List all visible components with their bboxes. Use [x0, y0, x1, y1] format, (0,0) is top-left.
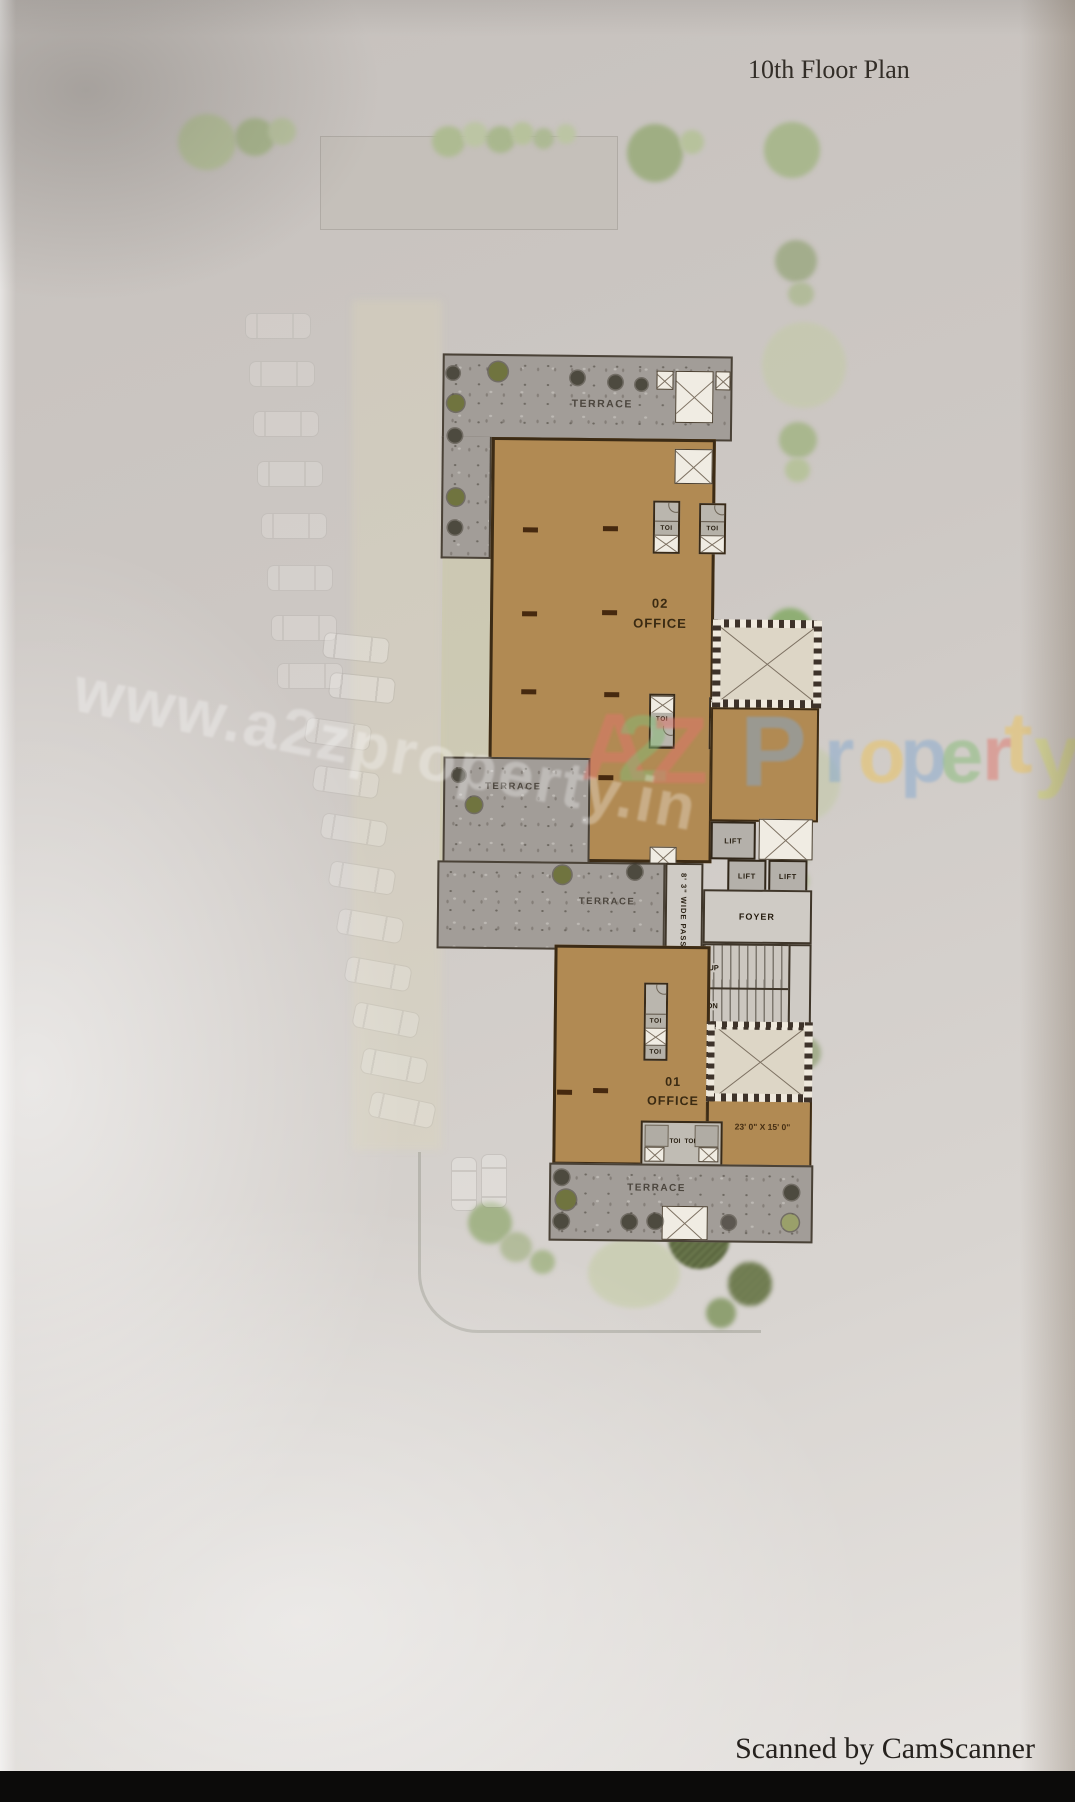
- shaft-top-side: [656, 371, 673, 390]
- watermark-letter: y: [1034, 714, 1075, 796]
- column-marker: [603, 526, 618, 531]
- tree-icon: [788, 282, 814, 306]
- plant-icon: [635, 378, 647, 390]
- plant-icon: [447, 366, 460, 379]
- car-icon: [254, 412, 318, 436]
- plant-icon: [627, 864, 642, 879]
- lift-shaft-small: [759, 819, 813, 861]
- tree-icon: [764, 122, 820, 178]
- toilet-label: TOI: [685, 1138, 696, 1145]
- watermark-letter: o: [858, 716, 906, 794]
- lift-1: LIFT: [711, 821, 756, 859]
- lift-label: LIFT: [738, 872, 756, 881]
- shaft-wall: [813, 620, 822, 708]
- column-marker: [593, 1088, 608, 1093]
- plant-icon: [448, 520, 462, 534]
- toilet-label: TOI: [645, 1045, 665, 1059]
- tree-icon: [728, 1262, 772, 1306]
- plant-icon: [784, 1185, 799, 1200]
- office-02-label: 02 OFFICE: [610, 593, 710, 633]
- tree-icon: [775, 240, 817, 282]
- car-icon: [246, 314, 310, 338]
- shaft-wall: [712, 619, 721, 707]
- watermark-letter: e: [940, 716, 983, 794]
- plant-icon: [648, 1214, 663, 1229]
- foyer: FOYER: [703, 889, 813, 944]
- toilet-unit: TOI: [653, 501, 681, 554]
- plant-icon: [554, 1170, 569, 1185]
- site-block: [320, 136, 618, 230]
- column-marker: [557, 1090, 572, 1095]
- shaft-top-side: [715, 371, 730, 390]
- tree-icon: [680, 130, 704, 154]
- toilet-door: [698, 1147, 718, 1162]
- tree-icon: [556, 124, 576, 144]
- toilet-door: [655, 535, 678, 552]
- toilet-fixture: [655, 503, 678, 522]
- car-icon: [258, 462, 322, 486]
- tree-icon: [462, 122, 488, 147]
- terrace-bottom-label: TERRACE: [609, 1182, 704, 1194]
- watermark-letter: r: [824, 716, 854, 794]
- plant-icon: [556, 1190, 576, 1210]
- car-icon: [262, 514, 326, 538]
- plant-icon: [447, 394, 464, 411]
- tree-icon: [706, 1298, 736, 1328]
- camscanner-bar: [0, 1771, 1075, 1802]
- toilet-door: [701, 535, 724, 552]
- plant-icon: [608, 375, 622, 389]
- toilet-unit: TOI: [699, 503, 727, 554]
- scanner-credit: Scanned by CamScanner: [735, 1732, 1035, 1766]
- tree-icon: [511, 122, 534, 145]
- shaft-wall: [713, 619, 822, 628]
- tree-icon: [533, 128, 554, 149]
- car-icon: [250, 362, 314, 386]
- lift-label: LIFT: [779, 872, 797, 881]
- plant-icon: [570, 371, 584, 385]
- shaft-wall: [706, 1021, 715, 1101]
- toilet-block-bottom: TOI TOI: [640, 1121, 722, 1167]
- plant-icon: [782, 1214, 799, 1231]
- tree-icon: [268, 118, 296, 145]
- toilet-fixture: [646, 985, 666, 1015]
- car-icon: [268, 566, 332, 590]
- shaft-wall: [804, 1022, 813, 1102]
- stair-side: [788, 944, 812, 1030]
- plant-icon: [722, 1215, 736, 1229]
- lift-2: LIFT: [727, 859, 766, 892]
- toilet-door: [644, 1147, 664, 1162]
- scanned-page: 10th Floor Plan: [0, 0, 1075, 1802]
- shaft-top: [675, 371, 714, 423]
- plant-icon: [489, 362, 508, 381]
- toilet-label: TOI: [670, 1138, 681, 1145]
- watermark-letter: P: [740, 702, 807, 802]
- lift-shaft-large: [712, 623, 822, 704]
- dimension-label: 23' 0" X 15' 0": [735, 1122, 825, 1133]
- toilet-label: TOI: [701, 522, 724, 535]
- plant-icon: [553, 866, 571, 884]
- plant-icon: [622, 1214, 637, 1229]
- shaft-office2: [674, 449, 712, 484]
- shaft-wall: [710, 1093, 810, 1102]
- page-title: 10th Floor Plan: [748, 55, 1038, 85]
- office-02-number: 02: [610, 593, 710, 614]
- toilet-fixture: [694, 1125, 718, 1147]
- toilet-fixture: [644, 1125, 668, 1147]
- toilet-unit: TOI TOI: [643, 983, 668, 1061]
- staircase: [702, 943, 791, 1030]
- lift-label: LIFT: [724, 836, 742, 845]
- column-marker: [522, 611, 537, 616]
- toilet-fixture: [701, 505, 724, 522]
- tree-icon: [530, 1250, 555, 1274]
- shaft-bottom-terrace: [662, 1206, 708, 1240]
- plant-icon: [554, 1214, 569, 1229]
- shaft-wall: [711, 1021, 811, 1030]
- lift-shaft-bottom: [710, 1025, 811, 1098]
- watermark-letter: t: [1004, 700, 1033, 786]
- toilet-label: TOI: [655, 522, 678, 535]
- tree-icon: [627, 124, 683, 182]
- tree-icon: [178, 114, 236, 170]
- plant-icon: [448, 428, 462, 442]
- column-marker: [521, 689, 536, 694]
- foyer-label: FOYER: [739, 912, 775, 922]
- terrace-middle-label2: TERRACE: [562, 896, 652, 908]
- terrace-top-label: TERRACE: [557, 398, 647, 411]
- office-02-text: OFFICE: [610, 613, 710, 634]
- column-marker: [523, 527, 538, 532]
- toilet-door: [646, 1028, 666, 1045]
- toilet-label: TOI: [646, 1015, 666, 1028]
- stair-landing-line: [704, 987, 788, 990]
- lift-3: LIFT: [768, 860, 807, 893]
- plant-icon: [447, 488, 464, 505]
- tree-icon: [432, 126, 465, 157]
